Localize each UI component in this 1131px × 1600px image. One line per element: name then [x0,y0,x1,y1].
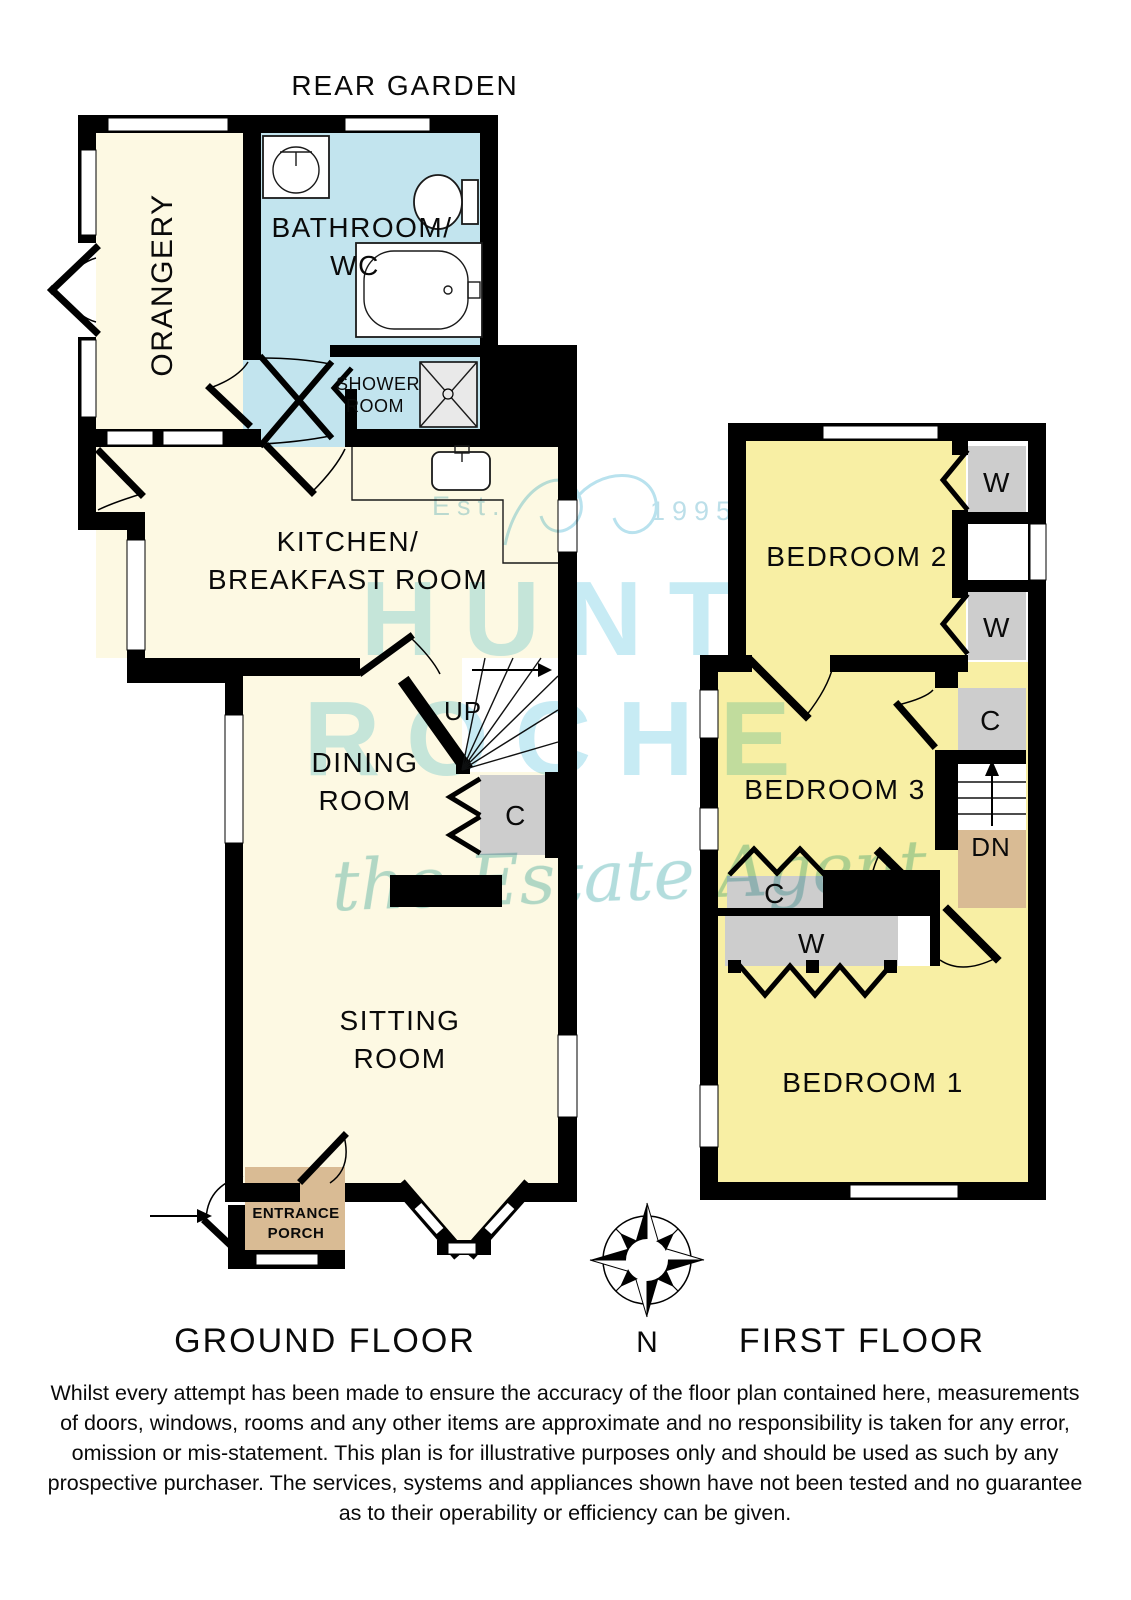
sitting-label-line1: SITTING [340,1005,461,1036]
disclaimer-line-3: omission or mis-statement. This plan is … [72,1441,1059,1465]
wardrobe-top1-label: W [983,467,1011,498]
ground-floor-title: GROUND FLOOR [174,1322,476,1360]
disclaimer-text: Whilst every attempt has been made to en… [48,1381,1083,1525]
watermark-year: 1995 [650,496,738,526]
first-floor-plan: BEDROOM 2 BEDROOM 3 BEDROOM 1 W W C DN C… [700,423,1046,1200]
stairs-down-label: DN [971,832,1011,862]
watermark-est: Est. [432,491,507,521]
watermark-brand-line2: ROCHE [304,680,817,798]
shower-label-line2: ROOM [346,396,404,416]
orangery-label: ORANGERY [146,193,179,376]
rear-garden-label: REAR GARDEN [291,70,518,101]
disclaimer-line-5: as to their operability or efficiency ca… [339,1501,792,1525]
compass-rose [590,1203,704,1317]
bedroom2-label: BEDROOM 2 [766,541,948,572]
floor-plan-drawing: ORANGERY BATHROOM/ WC SHOWER ROOM KITCHE… [0,0,1131,1600]
floor-plan-page: ORANGERY BATHROOM/ WC SHOWER ROOM KITCHE… [0,0,1131,1600]
disclaimer-line-4: prospective purchaser. The services, sys… [48,1471,1083,1495]
kitchen-sink-icon [432,452,490,490]
disclaimer-line-1: Whilst every attempt has been made to en… [51,1381,1080,1405]
bathroom-label-line1: BATHROOM/ [272,212,453,243]
disclaimer-line-2: of doors, windows, rooms and any other i… [60,1411,1070,1435]
kitchen-label-line1: KITCHEN/ [277,526,420,557]
bedroom1-label: BEDROOM 1 [782,1067,964,1098]
wardrobe-recess [898,916,930,966]
wardrobe-top2-label: W [983,612,1011,643]
porch-label-line1: ENTRANCE [252,1205,339,1222]
porch-label-line2: PORCH [268,1225,325,1242]
shower-tray-icon [420,362,477,427]
bathroom-label-line2: WC [330,250,380,281]
cupboard-landing-label: C [980,705,1002,736]
compass-north-label: N [636,1326,658,1359]
watermark-brand-line1: HUNT [361,560,759,678]
cupboard-ground-label: C [505,800,527,831]
wardrobe-mid-label: W [798,928,826,959]
sitting-label-line2: ROOM [353,1043,446,1074]
first-floor-title: FIRST FLOOR [739,1322,985,1360]
shower-label-line1: SHOWER [336,374,420,394]
